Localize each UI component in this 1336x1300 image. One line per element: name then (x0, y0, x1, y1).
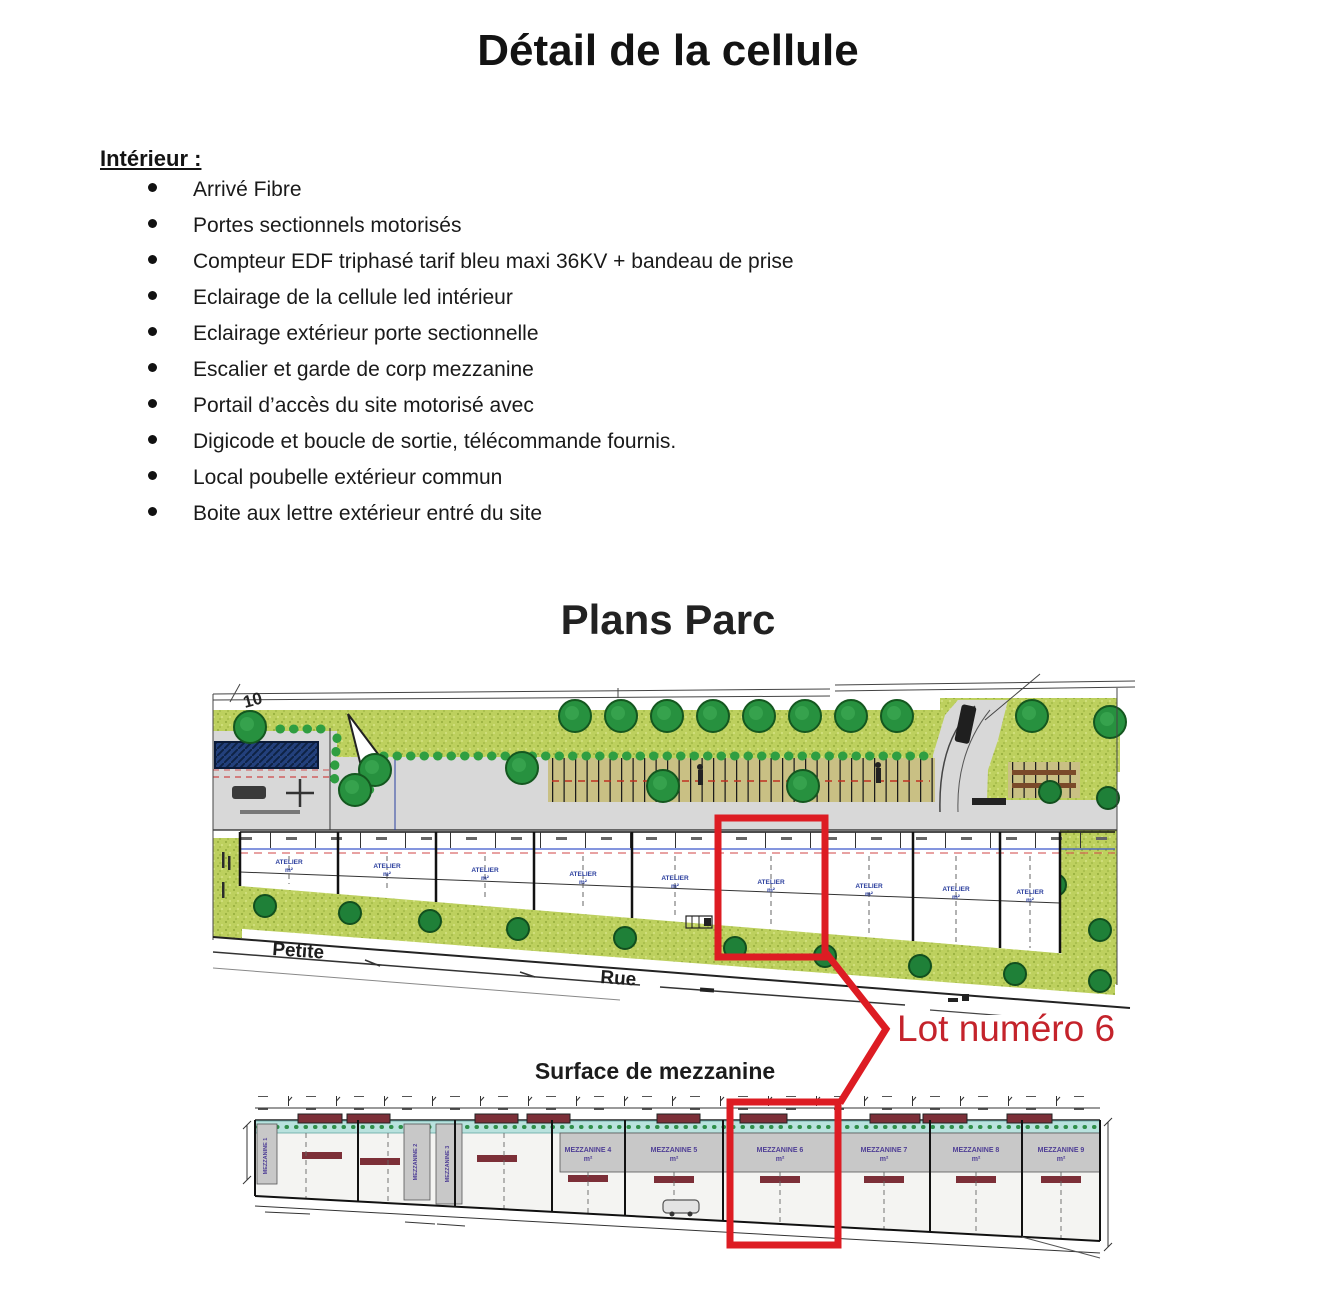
svg-text:ATELIER: ATELIER (471, 867, 499, 874)
bullet-icon (148, 291, 157, 300)
bullet-icon (148, 471, 157, 480)
svg-text:MEZZANINE 6: MEZZANINE 6 (757, 1147, 804, 1154)
street-name-label: Rue (600, 967, 637, 990)
svg-text:ATELIER: ATELIER (855, 883, 883, 890)
svg-text:m²: m² (952, 894, 961, 901)
svg-text:m²: m² (579, 879, 588, 886)
bullet-icon (148, 327, 157, 336)
svg-text:m²: m² (767, 887, 776, 894)
bullet-icon (148, 255, 157, 264)
list-item: Portail d’accès du site motorisé avec (148, 394, 794, 430)
svg-text:m²: m² (776, 1156, 785, 1163)
site-plan-figure: 10 (205, 672, 1140, 1015)
svg-text:MEZZANINE 1: MEZZANINE 1 (263, 1138, 269, 1175)
svg-text:MEZZANINE 7: MEZZANINE 7 (861, 1147, 908, 1154)
list-item: Portes sectionnels motorisés (148, 214, 794, 250)
svg-text:m²: m² (285, 867, 294, 874)
street-name-label: Petite (272, 939, 325, 964)
mezzanine-heading: Surface de mezzanine (350, 1058, 960, 1085)
interior-heading: Intérieur : (100, 146, 201, 172)
svg-text:ATELIER: ATELIER (942, 886, 970, 893)
svg-text:ATELIER: ATELIER (569, 871, 597, 878)
list-item: Arrivé Fibre (148, 178, 794, 214)
svg-text:m²: m² (1057, 1156, 1066, 1163)
svg-text:m²: m² (865, 891, 874, 898)
svg-text:m²: m² (972, 1156, 981, 1163)
bullet-icon (148, 435, 157, 444)
parcel-number-label: 10 (241, 689, 264, 712)
list-item: Eclairage de la cellule led intérieur (148, 286, 794, 322)
svg-text:MEZZANINE 5: MEZZANINE 5 (651, 1147, 698, 1154)
svg-text:m²: m² (481, 875, 490, 882)
svg-text:ATELIER: ATELIER (1016, 889, 1044, 896)
mezzanine-strip: MEZZANINE 1 MEZZANINE 2 MEZZANINE 3 MEZZ… (243, 1114, 1112, 1258)
svg-text:m²: m² (383, 871, 392, 878)
page-title: Détail de la cellule (0, 26, 1336, 76)
svg-text:m²: m² (584, 1156, 593, 1163)
svg-text:m²: m² (1026, 897, 1035, 904)
list-item: Local poubelle extérieur commun (148, 466, 794, 502)
dimension-chain (255, 1096, 1100, 1110)
document-page: Détail de la cellule Intérieur : Arrivé … (0, 0, 1336, 1300)
svg-text:ATELIER: ATELIER (373, 863, 401, 870)
existing-building (215, 742, 318, 768)
bullet-icon (148, 183, 157, 192)
list-item: Compteur EDF triphasé tarif bleu maxi 36… (148, 250, 794, 286)
svg-text:MEZZANINE 8: MEZZANINE 8 (953, 1147, 1000, 1154)
bullet-icon (148, 399, 157, 408)
bullet-icon (148, 507, 157, 516)
svg-text:MEZZANINE 4: MEZZANINE 4 (565, 1147, 612, 1154)
mezzanine-plan-figure: MEZZANINE 1 MEZZANINE 2 MEZZANINE 3 MEZZ… (235, 1085, 1140, 1270)
list-item: Digicode et boucle de sortie, télécomman… (148, 430, 794, 466)
svg-text:m²: m² (880, 1156, 889, 1163)
svg-text:ATELIER: ATELIER (661, 875, 689, 882)
svg-text:MEZZANINE 9: MEZZANINE 9 (1038, 1147, 1085, 1154)
svg-text:m²: m² (670, 1156, 679, 1163)
svg-text:m²: m² (671, 883, 680, 890)
svg-text:MEZZANINE 3: MEZZANINE 3 (445, 1146, 451, 1183)
plans-heading: Plans Parc (0, 596, 1336, 644)
svg-text:ATELIER: ATELIER (757, 879, 785, 886)
svg-text:MEZZANINE 2: MEZZANINE 2 (413, 1144, 419, 1181)
list-item: Escalier et garde de corp mezzanine (148, 358, 794, 394)
interior-feature-list: Arrivé Fibre Portes sectionnels motorisé… (148, 178, 794, 538)
bullet-icon (148, 363, 157, 372)
svg-text:ATELIER: ATELIER (275, 859, 303, 866)
bullet-icon (148, 219, 157, 228)
list-item: Eclairage extérieur porte sectionnelle (148, 322, 794, 358)
list-item: Boite aux lettre extérieur entré du site (148, 502, 794, 538)
parked-car-icon (232, 786, 266, 799)
